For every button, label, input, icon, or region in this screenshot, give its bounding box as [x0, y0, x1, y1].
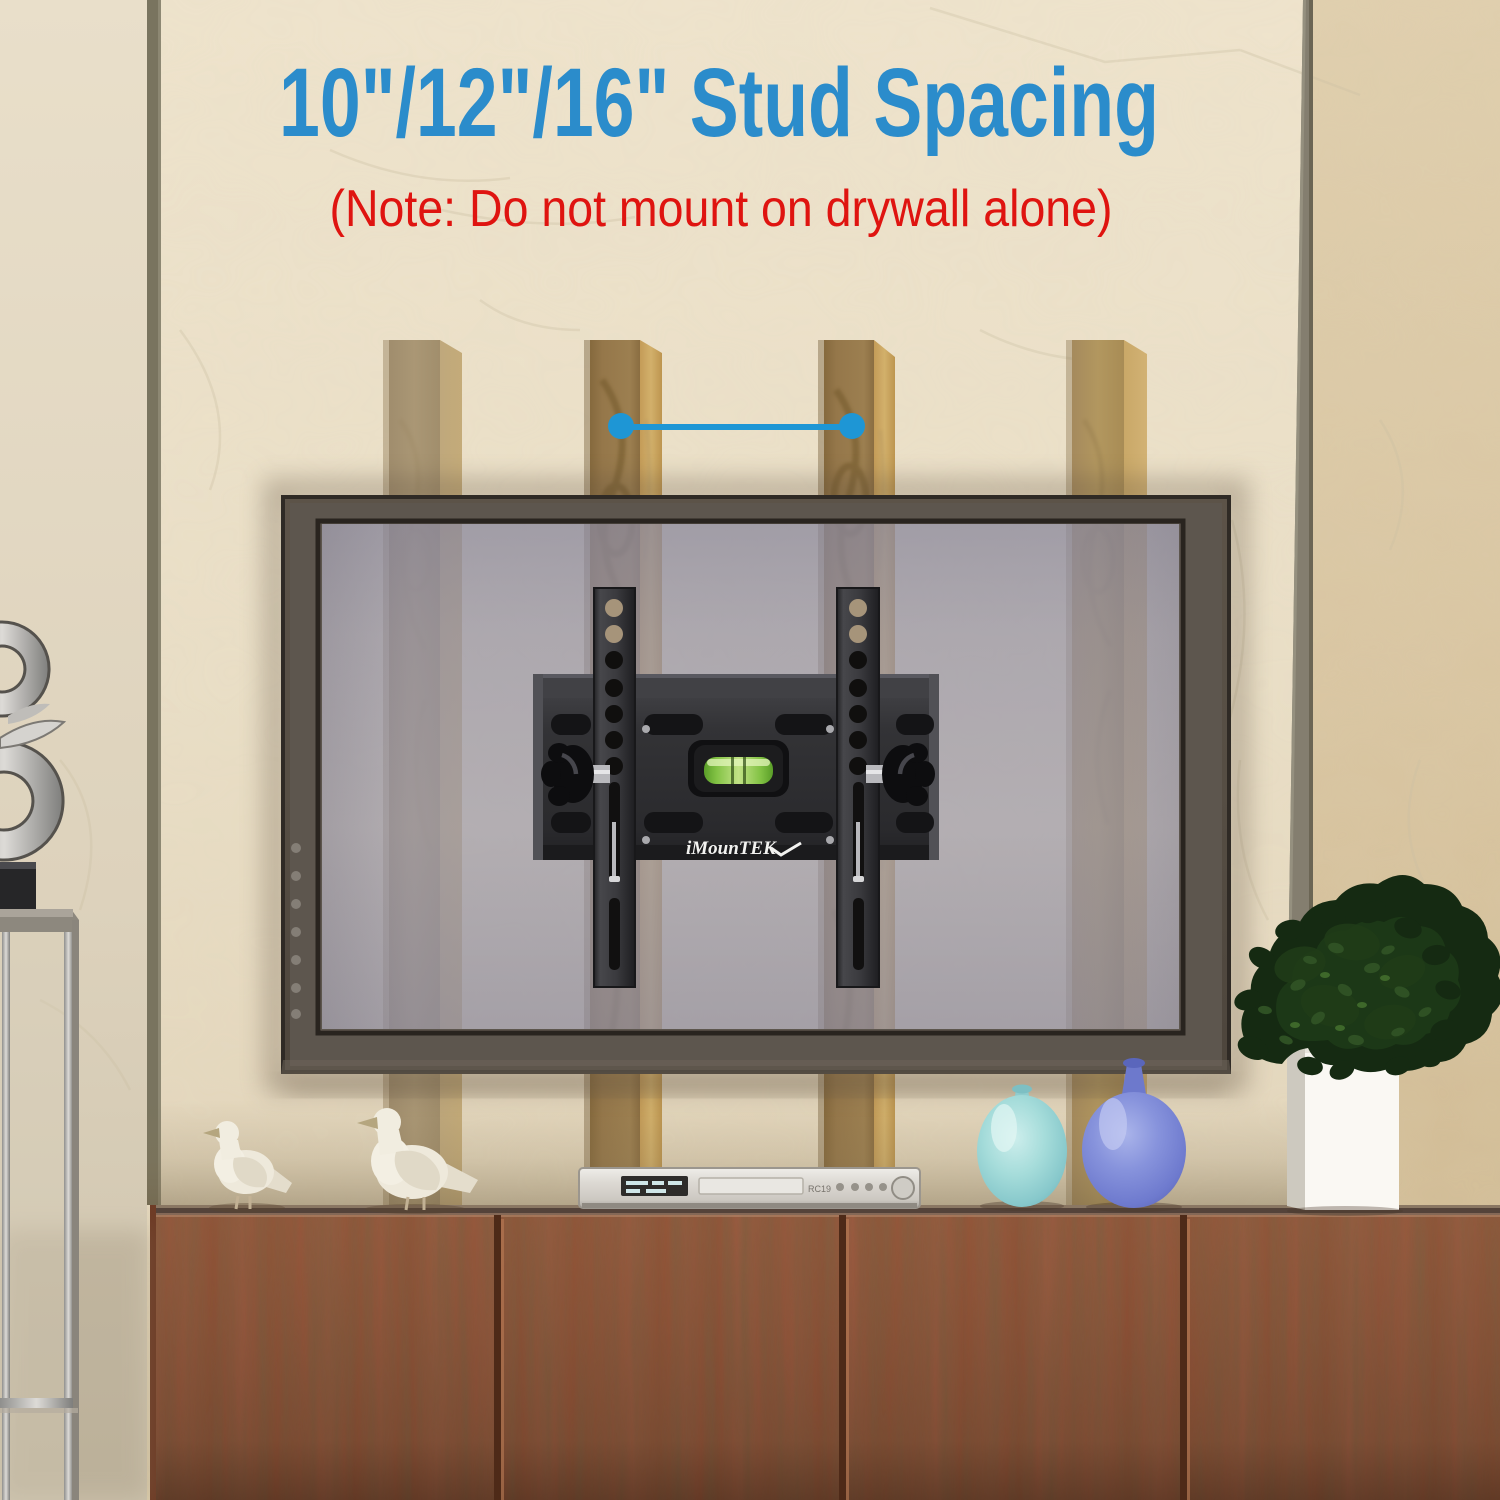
svg-text:iMounTEK: iMounTEK	[686, 838, 777, 859]
svg-text:RC19: RC19	[808, 1184, 831, 1194]
svg-text:10"/12"/16" Stud Spacing: 10"/12"/16" Stud Spacing	[279, 48, 1159, 157]
svg-text:(Note: Do not mount on drywall: (Note: Do not mount on drywall alone)	[330, 180, 1113, 238]
